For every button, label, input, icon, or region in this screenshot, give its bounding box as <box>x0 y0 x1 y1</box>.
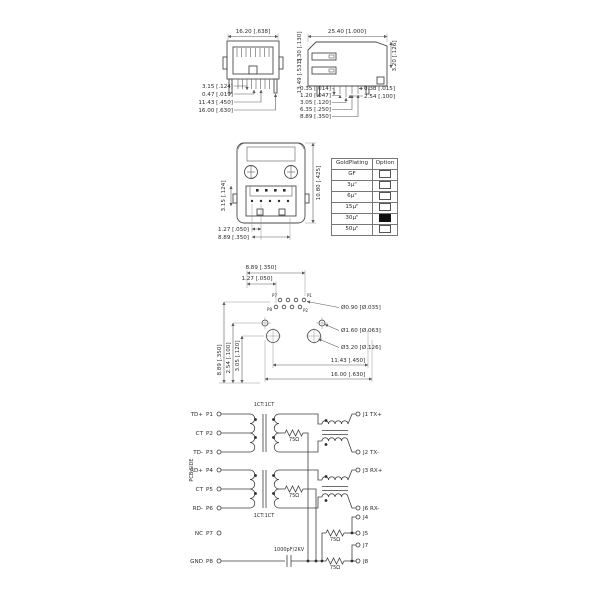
tx-ct-resistor-value: 75Ω <box>289 437 299 443</box>
front-dim-2: 0.47 [.019] <box>202 92 233 98</box>
fp-dim-bottom-2: 16.00 [.630] <box>331 372 366 378</box>
pin-label-bottom-left: P8 <box>267 307 272 312</box>
pin-label-bottom-right: P2 <box>303 308 308 313</box>
rj45-bottom-outline <box>233 143 309 223</box>
plating-checkbox-3u <box>379 181 391 189</box>
pin-num-1: P1 <box>206 412 213 418</box>
rx-ct-resistor <box>285 486 303 492</box>
plating-checkbox-50u <box>379 225 391 233</box>
output-j3: J3 RX+ <box>362 468 383 474</box>
pin-label-top-right: P1 <box>307 293 312 298</box>
plating-label: GF <box>332 169 373 180</box>
gold-plating-table: GoldPlating Option GF 3µ" 6µ" 15µ" 30µ" … <box>331 158 398 236</box>
side-dim-br-2: 2.54 [.100] <box>364 94 395 100</box>
pin-name-3: TD- <box>192 450 203 456</box>
plating-label: 30µ" <box>332 213 373 224</box>
plating-row-gf: GF <box>332 169 398 180</box>
pcb-pins: TD+ P1 CT P2 TD- P3 RD+ P4 CT P5 RD- P6 … <box>190 412 221 565</box>
pin-holes: P7 P1 P8 P2 <box>267 293 312 313</box>
output-j1: J1 TX+ <box>362 412 382 418</box>
pin-num-8: P8 <box>206 559 213 565</box>
plating-checkbox-6u <box>379 192 391 200</box>
output-j2: J2 TX- <box>362 450 379 456</box>
front-dim-3: 11.43 [.450] <box>198 100 233 106</box>
fp-dim-top-a: 8.89 [.350] <box>245 265 276 271</box>
fp-dim-top-b: 1.27 [.050] <box>241 276 272 282</box>
bottom-view: 3.15 [.124] 10.80 [.425] 1.27 [.050] 8.8… <box>218 143 322 241</box>
mounting-posts <box>245 166 298 179</box>
pin-name-2: CT <box>196 431 204 437</box>
ratio-label-top: 1CT:1CT <box>254 402 276 408</box>
capacitor-value: 1000pF/2KV <box>274 547 305 553</box>
plating-row-3u: 3µ" <box>332 180 398 191</box>
rj45-contacts <box>237 48 269 57</box>
plating-label: 50µ" <box>332 224 373 235</box>
bottom-dim-a: 1.27 [.050] <box>218 227 249 233</box>
pin-name-4: RD+ <box>190 468 203 474</box>
side-dim-bl-5: 8.89 [.350] <box>300 114 331 120</box>
plating-header-label: GoldPlating <box>332 159 373 170</box>
schematic: PCB SIDE 1CT:1CT 1CT:1CT TD+ P1 CT P2 TD… <box>189 402 383 571</box>
rx-ct-resistor-value: 75Ω <box>289 493 299 499</box>
fp-dim-left-3: 3.05 [.120] <box>235 340 241 371</box>
front-dim-1: 3.15 [.124] <box>202 84 233 90</box>
side-dim-top: 25.40 [1.000] <box>328 29 366 35</box>
side-dim-bl-3: 3.05 [.120] <box>300 100 331 106</box>
fp-callout-2: Ø1.60 [Ø.063] <box>341 327 381 334</box>
pin-name-1: TD+ <box>190 412 204 418</box>
pin-name-8: GND <box>190 559 203 565</box>
j8-resistor-value: 75Ω <box>330 565 340 571</box>
alignment-holes <box>259 317 328 329</box>
tx-ct-resistor <box>285 430 303 436</box>
side-dim-br-1: 0.38 [.015] <box>364 86 395 92</box>
pin-num-2: P2 <box>206 431 213 437</box>
fp-dim-left-2: 2.54 [.100] <box>226 342 232 373</box>
pin-num-3: P3 <box>206 450 213 456</box>
pin-label-top-left: P7 <box>272 293 277 298</box>
j5-resistor <box>326 530 344 536</box>
pin-name-5: CT <box>196 487 204 493</box>
output-j6: J6 RX- <box>362 506 379 512</box>
technical-drawing: 16.20 [.638] 3.15 <box>0 0 600 600</box>
plating-label: 3µ" <box>332 180 373 191</box>
plating-checkbox-30u-selected <box>379 214 391 222</box>
pin-num-5: P5 <box>206 487 213 493</box>
side-view: 25.40 [1.000] 3.30 [.130] 13.49 [.531] 3… <box>297 29 398 120</box>
pin-name-6: RD- <box>193 506 203 512</box>
side-dim-bl-1: 0.35 [.014] <box>300 86 331 92</box>
bottom-dim-b: 8.89 [.350] <box>218 235 249 241</box>
pin-num-4: P4 <box>206 468 213 474</box>
connector-datasheet-page: 16.20 [.638] 3.15 <box>0 0 600 600</box>
side-dim-bl-4: 6.35 [.250] <box>300 107 331 113</box>
ratio-label-bottom: 1CT:1CT <box>254 513 276 519</box>
fp-dim-left-1: 8.89 [.350] <box>217 344 223 375</box>
output-j7: J7 <box>362 543 369 549</box>
output-j4: J4 <box>362 515 369 521</box>
side-dim-right-rotated: 3.20 [.126] <box>392 40 398 71</box>
front-dim-4: 16.00 [.630] <box>198 108 233 114</box>
bottom-pin-marks <box>251 189 289 202</box>
j5-resistor-value: 75Ω <box>330 537 340 543</box>
bottom-dim-right: 10.80 [.425] <box>316 166 322 201</box>
plating-row-6u: 6µ" <box>332 191 398 202</box>
plating-row-50u: 50µ" <box>332 224 398 235</box>
front-dim-top: 16.20 [.638] <box>236 29 271 35</box>
pin-num-7: P7 <box>206 531 213 537</box>
mounting-holes <box>265 328 322 344</box>
plating-label: 15µ" <box>332 202 373 213</box>
side-dim-left-upper: 3.30 [.130] <box>297 31 303 62</box>
termination-network: 1000pF/2KV 75Ω 75Ω <box>221 517 356 571</box>
pin-num-6: P6 <box>206 506 213 512</box>
plating-checkbox-15u <box>379 203 391 211</box>
plating-label: 6µ" <box>332 191 373 202</box>
plating-checkbox-gf <box>379 170 391 178</box>
plating-header-option: Option <box>373 159 398 170</box>
fp-callout-3: Ø3.20 [Ø.126] <box>341 344 381 351</box>
pin-name-7: NC <box>195 531 203 537</box>
fp-dim-bottom-1: 11.43 [.450] <box>331 358 366 364</box>
pcb-footprint: 8.89 [.350] 1.27 [.050] P7 P1 P8 P2 <box>217 265 381 383</box>
hv-capacitor <box>287 555 291 567</box>
plating-row-15u: 15µ" <box>332 202 398 213</box>
jack-outputs: J1 TX+ J2 TX- J3 RX+ J6 RX- J4 J5 J7 J8 <box>356 412 383 565</box>
output-j5: J5 <box>362 531 369 537</box>
plating-header-row: GoldPlating Option <box>332 159 398 170</box>
fp-callout-1: Ø0.90 [Ø.035] <box>341 304 381 311</box>
bottom-dim-left: 3.15 [.124] <box>221 180 227 211</box>
j8-resistor <box>326 558 344 564</box>
front-view: 16.20 [.638] 3.15 <box>198 29 283 114</box>
output-j8: J8 <box>362 559 369 565</box>
plating-row-30u: 30µ" <box>332 213 398 224</box>
side-dim-bl-2: 1.20 [.047] <box>300 93 331 99</box>
